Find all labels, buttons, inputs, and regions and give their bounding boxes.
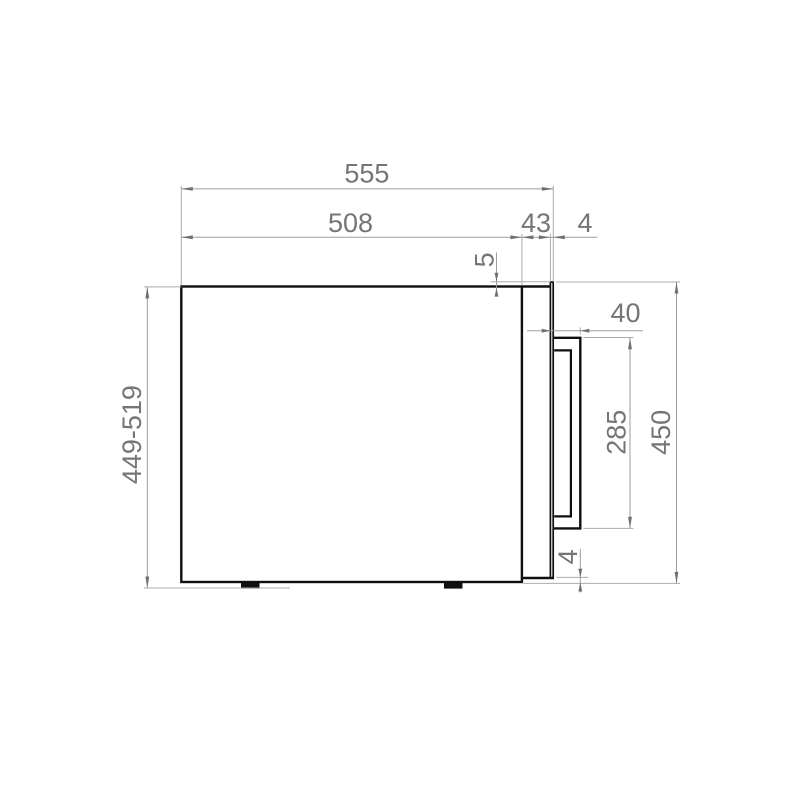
svg-text:285: 285 bbox=[602, 410, 632, 455]
svg-text:40: 40 bbox=[610, 298, 640, 328]
svg-text:555: 555 bbox=[344, 159, 389, 189]
svg-text:449-519: 449-519 bbox=[117, 385, 147, 484]
svg-text:4: 4 bbox=[577, 208, 592, 238]
svg-text:4: 4 bbox=[553, 549, 583, 564]
svg-text:5: 5 bbox=[470, 252, 500, 267]
svg-text:450: 450 bbox=[646, 410, 676, 455]
svg-text:43: 43 bbox=[521, 208, 551, 238]
svg-text:508: 508 bbox=[328, 208, 373, 238]
